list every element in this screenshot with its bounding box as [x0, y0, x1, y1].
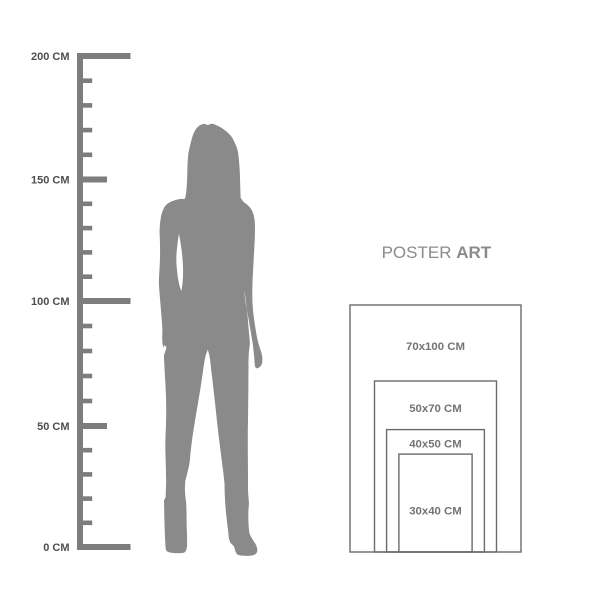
svg-text:POSTER ART: POSTER ART — [382, 243, 492, 262]
svg-text:150 CM: 150 CM — [31, 175, 70, 187]
svg-text:50x70 CM: 50x70 CM — [409, 403, 462, 415]
svg-text:50 CM: 50 CM — [37, 421, 69, 433]
svg-text:30x40 CM: 30x40 CM — [409, 506, 462, 518]
svg-text:40x50 CM: 40x50 CM — [409, 439, 462, 451]
svg-text:0 CM: 0 CM — [43, 542, 69, 554]
svg-text:200 CM: 200 CM — [31, 51, 70, 63]
svg-text:100 CM: 100 CM — [31, 296, 70, 308]
svg-text:70x100 CM: 70x100 CM — [406, 341, 465, 353]
